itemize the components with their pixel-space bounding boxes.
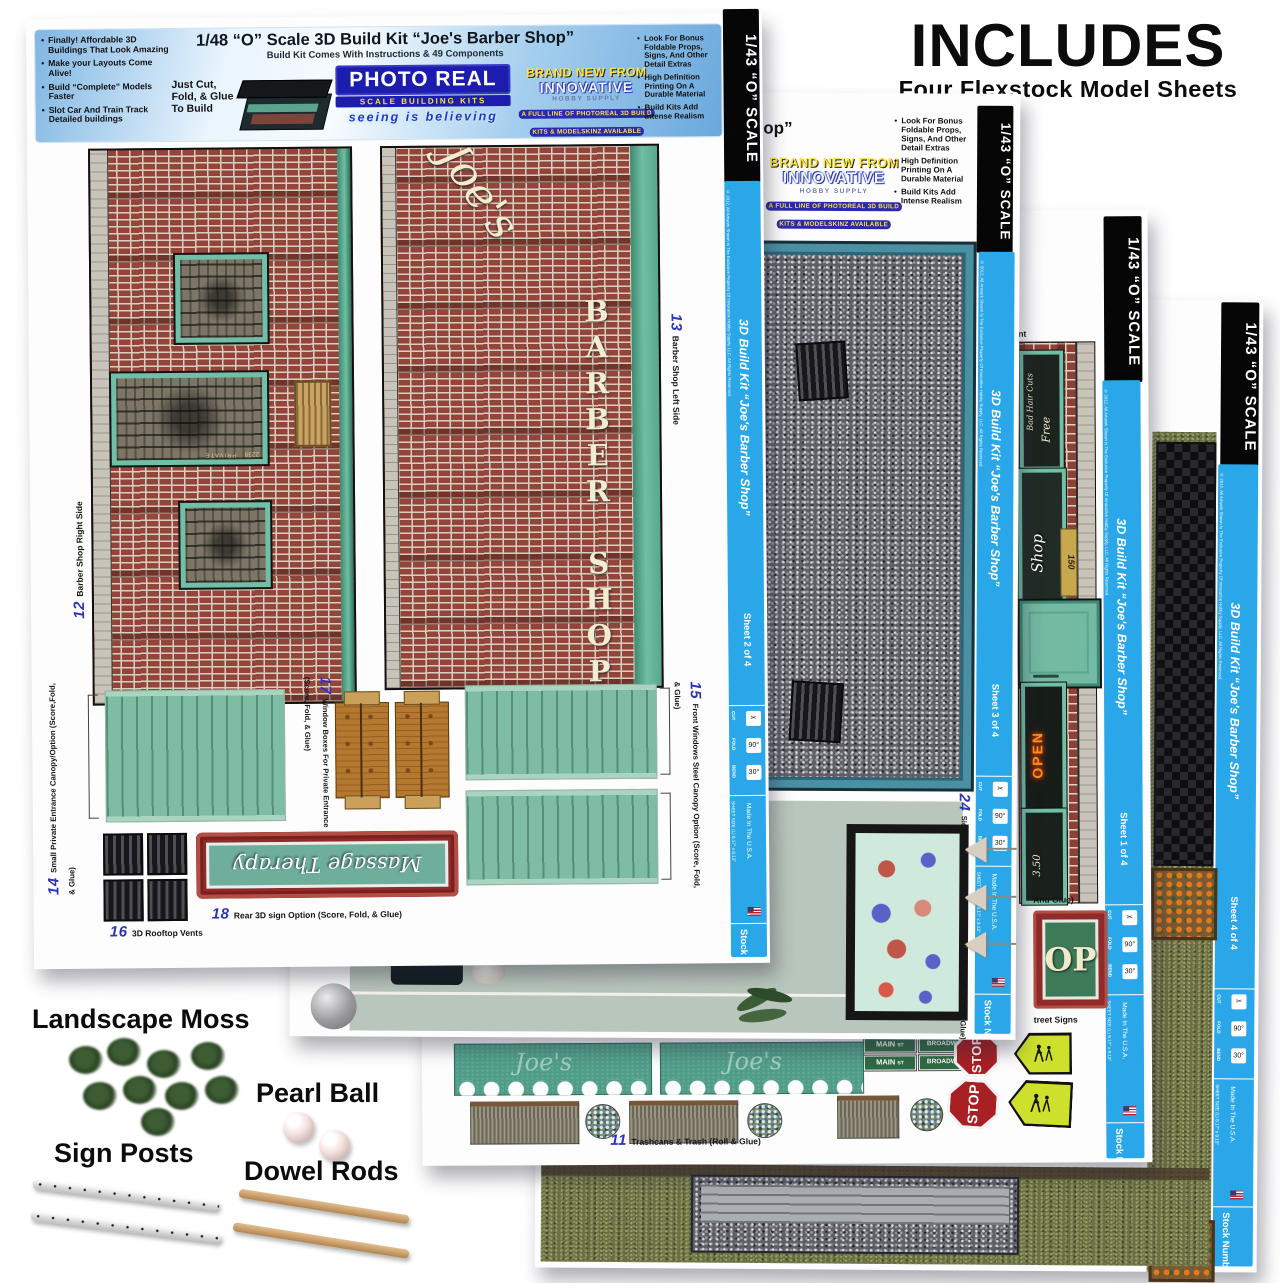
private-door-art: PRIVATE 2239 <box>111 372 268 465</box>
part-label-15: 15 Front Windows Steel Canopy Option (Sc… <box>678 681 706 893</box>
part-label-11: 11 Trashcans & Trash (Roll & Glue) <box>610 1131 761 1150</box>
scale-tab: 1/43 “O” SCALE <box>1220 302 1259 466</box>
crossing-sign-art <box>1014 1033 1072 1075</box>
base-ground-art <box>1147 432 1217 1272</box>
window-box-art <box>395 702 450 798</box>
scale-tab: 1/43 “O” SCALE <box>723 9 761 183</box>
us-flag-icon <box>1123 1106 1136 1115</box>
sheet-of-label: Sheet 4 of 4 <box>1228 896 1240 988</box>
awning-art: Joe's <box>660 1042 864 1095</box>
made-in-label: Made In The U.S.A. <box>1121 1002 1129 1102</box>
part-label-16: 16 3D Rooftop Vents <box>110 923 203 942</box>
stop-sign-art: STOP <box>946 1077 1001 1130</box>
bend-icon: 30° <box>1231 1048 1246 1063</box>
wood-vent-art <box>294 381 332 447</box>
sheet-of-label: Sheet 2 of 4 <box>741 613 753 705</box>
copyright-text: © 2012, All Artwork Shown Is The Exclusi… <box>1103 388 1110 818</box>
roof-part-art <box>744 240 977 791</box>
cut-fold-bend-icons: CUT✂ FOLD90° BEND30° <box>1216 992 1249 1073</box>
fold-icon: 90° <box>746 738 761 753</box>
sign-post-art <box>30 1210 222 1243</box>
fold-icon: 90° <box>1122 937 1137 952</box>
pedestrian-figures-icon <box>1026 1092 1055 1115</box>
scale-tab: 1/43 “O” SCALE <box>1104 216 1143 382</box>
extra-label-posts: Sign Posts <box>54 1138 194 1169</box>
sheet-of-label: Sheet 1 of 4 <box>1118 812 1129 904</box>
label-fragment-street-signs: treet Signs <box>1034 1014 1078 1024</box>
bend-icon: 30° <box>1122 964 1137 979</box>
cut-fold-glue-note: Just Cut, Fold, & Glue To Build <box>171 78 235 115</box>
title-fragment: op” <box>763 119 792 139</box>
includes-block: INCLUDES Four Flexstock Model Sheets <box>868 16 1268 103</box>
roof-grate-art <box>795 340 849 401</box>
label-fragment-and-glue: And Glue) <box>1033 894 1074 904</box>
pearl-ball-art <box>311 983 357 1029</box>
model-sheet-2: Finally! Affordable 3D Buildings That Lo… <box>26 13 770 969</box>
part-label-24: 24 Side Door Illusion Room/Joe's Residen… <box>945 794 972 1044</box>
extra-label-dowels: Dowel Rods <box>244 1156 399 1187</box>
kit-title: 3D Build Kit “Joe's Barber Shop” <box>987 298 1003 678</box>
includes-title: INCLUDES <box>868 16 1268 76</box>
barber-shop-sign-art: BARBER SHOP <box>541 294 616 690</box>
photo-real-logo: PHOTO REAL SCALE BUILDING KITS seeing is… <box>335 64 511 125</box>
bracket <box>661 793 672 880</box>
trashcan-wrap-art <box>837 1095 899 1138</box>
barred-window-art <box>180 502 271 588</box>
display-window-art: Bad Hair Cuts Free <box>1019 351 1064 471</box>
kit-title: 3D Build Kit “Joe's Barber Shop” <box>1226 510 1243 890</box>
sidewalk-art <box>691 1175 1020 1255</box>
storefront-art: Bad Hair Cuts Free Shop 150 OPEN 3.50 <box>1016 341 1098 903</box>
extra-label-pearl: Pearl Ball <box>256 1078 379 1109</box>
sheet-size-label: SHEET SIZE (L) 8.17” x 9.13” <box>1107 1000 1113 1118</box>
canopy-part-art <box>105 689 286 823</box>
plant-art <box>733 987 793 1033</box>
sheet-size-label: SHEET SIZE (L) 8.17” x 9.13” <box>731 801 737 919</box>
stock-number: Stock Number BK4809-1 <box>1109 1128 1128 1158</box>
teal-trim-art <box>630 146 662 686</box>
sheet-header: Finally! Affordable 3D Buildings That Lo… <box>34 23 723 143</box>
wall-left-side-art: Joe's BARBER SHOP <box>380 144 664 690</box>
rooftop-vent-art <box>147 833 187 875</box>
bullet-list-left: Finally! Affordable 3D Buildings That Lo… <box>41 35 170 129</box>
stock-number: Stock Number BK4809-2 <box>734 929 754 957</box>
pedestrian-figures-icon <box>1030 1044 1056 1064</box>
rooftop-vent-art <box>103 833 143 875</box>
joes-script-art: Joe's <box>428 144 529 249</box>
copyright-text: © 2012, All Artwork Shown Is The Exclusi… <box>977 260 984 690</box>
made-in-label: Made In The U.S.A. <box>745 803 753 903</box>
price-window-art: 3.50 <box>1022 809 1068 905</box>
sheet-size-label: SHEET SIZE (L) 8.17” x 9.13” <box>1214 1084 1220 1202</box>
trashcan-wrap-art <box>470 1101 579 1145</box>
fold-icon: 90° <box>1231 1021 1246 1036</box>
part-label-14: 14 Small Private Entrance Canopy/Option … <box>44 683 72 895</box>
address-tag-art: 150 <box>1060 528 1077 596</box>
moss-cluster-art <box>55 1038 255 1148</box>
sidewalk-strip-art <box>90 151 113 704</box>
bracket <box>88 695 99 819</box>
wall-right-side-art: PRIVATE 2239 <box>88 146 357 705</box>
flower-planter-art <box>1151 868 1218 940</box>
bullet-list-right: Look For Bonus Foldable Props, Signs, An… <box>894 117 982 210</box>
made-in-label: Made In The U.S.A. <box>990 874 998 974</box>
part-label-18: 18 Rear 3D sign Option (Score, Fold, & G… <box>212 904 402 924</box>
cut-icon: ✂ <box>746 711 761 726</box>
dowel-rod-art <box>232 1222 409 1259</box>
stock-number: Stock Number BK4809-4 <box>1215 1212 1234 1266</box>
rooftop-vent-art <box>147 879 187 921</box>
canopy-part-art <box>465 684 658 781</box>
product-image: { "includes": {"title": "INCLUDES", "sub… <box>0 0 1280 1280</box>
main-st-sign-art: MAIN ST <box>864 1037 916 1052</box>
canopy-part-art <box>466 789 659 886</box>
building-thumbnail <box>237 64 332 135</box>
extra-label-moss: Landscape Moss <box>32 1004 250 1035</box>
us-flag-icon <box>992 978 1005 987</box>
shop-sign-partial-art: OP <box>1033 910 1108 1008</box>
cut-icon: ✂ <box>993 782 1008 797</box>
pearl-ball-art <box>283 1112 314 1143</box>
sidewalk-strip-art <box>382 148 401 688</box>
cut-fold-bend-icons: CUT✂ FOLD90° BEND30° <box>731 709 764 790</box>
sheet-info-strip: © 2012, All Artwork Shown Is The Exclusi… <box>975 252 1015 1034</box>
awning-art: Joe's <box>454 1043 652 1096</box>
main-st-sign-art: MAIN ST <box>864 1055 916 1070</box>
dowel-rod-art <box>238 1189 409 1225</box>
barred-window-art <box>175 254 268 343</box>
part-label-13: 13 Barber Shop Left Side <box>662 313 686 513</box>
crossing-sign-art <box>1007 1079 1073 1128</box>
kit-header-title: 1/48 “O” Scale 3D Build Kit “Joe's Barbe… <box>165 28 605 62</box>
us-flag-icon <box>748 907 761 916</box>
stock-number: Stock Number BK4809-3 <box>977 1000 996 1034</box>
checkered-walk-art <box>1153 442 1216 866</box>
side-door-art <box>1020 600 1100 686</box>
cut-icon: ✂ <box>1231 994 1246 1009</box>
sign-post-art <box>32 1179 220 1212</box>
brand-block: BRAND NEW FROM INNOVATIVE HOBBY SUPPLY A… <box>754 155 914 232</box>
cut-icon: ✂ <box>1122 910 1137 925</box>
copyright-text: © 2012, All Artwork Shown Is The Exclusi… <box>725 189 734 619</box>
part-label-17: 17 Window Boxes For Private Entrance (Sc… <box>310 677 335 837</box>
bullet-list-right: Look For Bonus Foldable Props, Signs, An… <box>637 34 720 125</box>
made-in-label: Made In The U.S.A. <box>1228 1086 1236 1186</box>
sheet-info-strip: © 2012, All Artwork Shown Is The Exclusi… <box>1213 464 1259 1266</box>
grass-base-art <box>541 1164 1210 1267</box>
massage-sign-art: Massage Therapy <box>196 830 459 898</box>
cut-fold-bend-icons: CUT✂ FOLD90° BEND30° <box>1107 908 1139 989</box>
kit-title: 3D Build Kit “Joe's Barber Shop” <box>1114 426 1130 806</box>
sheet-of-label: Sheet 3 of 4 <box>989 684 1000 776</box>
copyright-text: © 2012, All Artwork Shown Is The Exclusi… <box>1216 472 1224 902</box>
part-label-12: 12 Barber Shop Right Side <box>69 409 93 619</box>
rooftop-vent-art <box>103 879 143 921</box>
teal-trim-art <box>337 148 355 701</box>
bend-icon: 30° <box>746 765 761 780</box>
window-box-art <box>335 702 390 798</box>
trash-top-art <box>910 1098 943 1131</box>
scale-tab: 1/43 “O” SCALE <box>977 106 1014 253</box>
roof-grate-art <box>789 680 844 743</box>
fold-icon: 90° <box>993 809 1008 824</box>
sheet-info-strip: © 2012, All Artwork Shown Is The Exclusi… <box>1102 380 1144 1158</box>
sheet-info-strip: © 2012, All Artwork Shown Is The Exclusi… <box>724 181 767 957</box>
kit-title: 3D Build Kit “Joe's Barber Shop” <box>736 227 753 607</box>
open-sign-window-art: OPEN <box>1021 683 1067 815</box>
us-flag-icon <box>1230 1190 1243 1199</box>
